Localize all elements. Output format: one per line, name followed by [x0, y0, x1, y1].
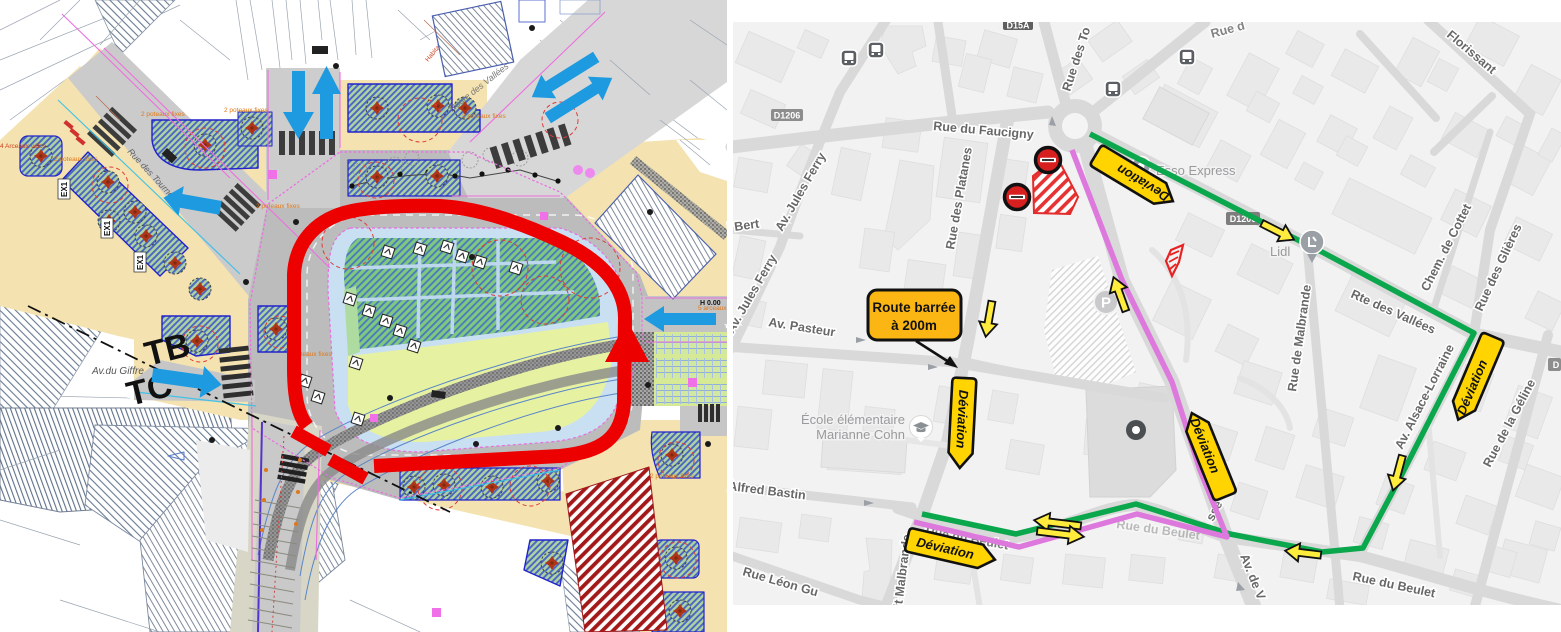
svg-text:Lidl: Lidl: [1270, 244, 1290, 259]
svg-text:4 Arceaux vélos: 4 Arceaux vélos: [0, 143, 47, 150]
svg-text:D: D: [1553, 360, 1560, 370]
svg-text:H 0.00: H 0.00: [700, 300, 721, 307]
svg-text:Marianne Cohn: Marianne Cohn: [816, 427, 905, 442]
svg-text:Déviation: Déviation: [953, 389, 971, 448]
svg-text:Route barrée: Route barrée: [872, 300, 956, 315]
svg-text:P: P: [1101, 295, 1111, 312]
svg-text:EX1: EX1: [103, 220, 112, 236]
svg-text:EX1: EX1: [60, 181, 69, 197]
svg-text:2 poteaux fixes: 2 poteaux fixes: [141, 111, 185, 118]
svg-text:2 poteaux fixes: 2 poteaux fixes: [224, 107, 268, 114]
svg-text:2 poteaux fixes: 2 poteaux fixes: [462, 113, 506, 120]
svg-text:École élémentaire: École élémentaire: [801, 412, 905, 427]
svg-text:2 poteaux fixes: 2 poteaux fixes: [650, 473, 694, 480]
svg-text:2 poteaux fixes: 2 poteaux fixes: [256, 203, 300, 210]
svg-text:à 200m: à 200m: [891, 318, 937, 333]
svg-text:2 poteaux fixes: 2 poteaux fixes: [54, 156, 98, 163]
svg-text:EX1: EX1: [136, 254, 145, 270]
svg-text:D1206: D1206: [774, 111, 801, 121]
